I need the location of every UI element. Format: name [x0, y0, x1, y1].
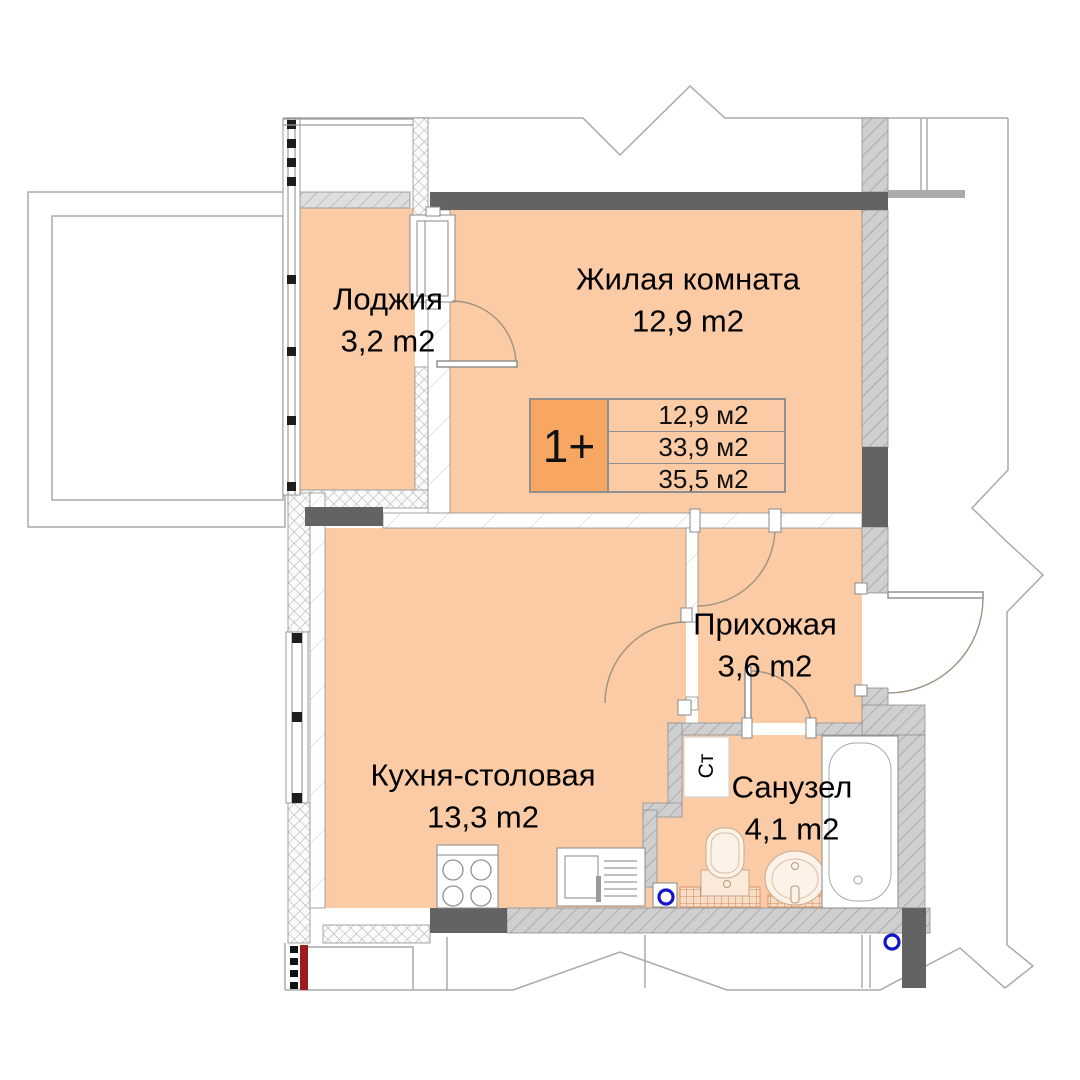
room-area: 4,1 m2 — [732, 808, 853, 850]
room-area: 3,6 m2 — [693, 645, 837, 687]
entry-door-leaf — [888, 592, 983, 598]
kitchen-sink-bowl — [565, 856, 598, 898]
wall-gray-tail — [888, 190, 965, 198]
wall-dark-right — [862, 447, 888, 527]
unit-legend: 1+ 12,9 м2 33,9 м2 35,5 м2 — [529, 398, 786, 493]
wall-dark-bottom-right — [902, 908, 926, 988]
dash-column — [290, 946, 298, 989]
neighbor-loggia-outer — [28, 192, 285, 527]
loggia-glazing — [283, 118, 300, 495]
riser-ring-2 — [885, 935, 899, 949]
room-name: Жилая комната — [576, 258, 800, 300]
wall-dark-loggia — [305, 507, 383, 526]
wall-left-lower — [288, 803, 310, 943]
wall-bath-left-upper — [668, 723, 682, 810]
basin-pedestal — [791, 886, 799, 903]
unit-type-badge: 1+ — [531, 400, 609, 491]
room-area: 3,2 m2 — [333, 320, 443, 362]
room-name: Кухня-столовая — [370, 754, 595, 796]
room-label-kitchen: Кухня-столовая 13,3 m2 — [370, 754, 595, 837]
wall-right-upper — [862, 210, 888, 447]
riser-ring-1 — [659, 890, 673, 904]
wall-loggia-partition-bottom — [415, 367, 428, 506]
balcony-door-leaf — [437, 361, 517, 367]
floor-plan: Лоджия 3,2 m2 Жилая комната 12,9 m2 Кухн… — [0, 0, 1080, 1080]
legend-row-usable-area: 33,9 м2 — [609, 431, 784, 463]
room-area: 13,3 m2 — [370, 796, 595, 838]
wall-bath-top-right — [812, 723, 862, 735]
wall-living-south — [383, 513, 862, 528]
wall-bottom-left-band — [323, 925, 430, 943]
top-cut-line — [285, 86, 1008, 155]
room-name: Прихожая — [693, 603, 837, 645]
washer-label: Ст — [695, 754, 719, 779]
floor-plan-drawing — [0, 0, 1080, 1080]
service-marks — [290, 945, 308, 990]
wall-loggia-top — [298, 192, 410, 208]
room-label-loggia: Лоджия 3,2 m2 — [333, 278, 443, 361]
unit-legend-rows: 12,9 м2 33,9 м2 35,5 м2 — [609, 400, 784, 491]
red-riser-stripe — [300, 945, 308, 990]
entry-door-arc — [888, 598, 983, 693]
room-name: Санузел — [732, 766, 853, 808]
wall-left-inner-face — [310, 493, 325, 908]
room-label-living: Жилая комната 12,9 m2 — [576, 258, 800, 341]
room-area: 12,9 m2 — [576, 300, 800, 342]
room-name: Лоджия — [333, 278, 443, 320]
room-label-bathroom: Санузел 4,1 m2 — [732, 766, 853, 849]
right-cut-line — [972, 118, 1043, 945]
room-label-hallway: Прихожая 3,6 m2 — [693, 603, 837, 686]
wall-bottom — [507, 908, 930, 933]
wall-dark-bottom — [430, 908, 507, 933]
wall-bath-corner — [862, 705, 925, 735]
wall-right-top — [862, 118, 888, 192]
legend-row-living-area: 12,9 м2 — [609, 400, 784, 431]
wall-bath-right — [898, 735, 925, 908]
legend-row-total-area: 35,5 м2 — [609, 463, 784, 495]
wall-loggia-partition-top — [413, 118, 428, 218]
wall-dark-top — [430, 192, 888, 210]
kitchen-sink-handle — [596, 876, 601, 902]
bottom-left-box — [307, 947, 413, 990]
neighbor-loggia-inner — [52, 216, 283, 500]
